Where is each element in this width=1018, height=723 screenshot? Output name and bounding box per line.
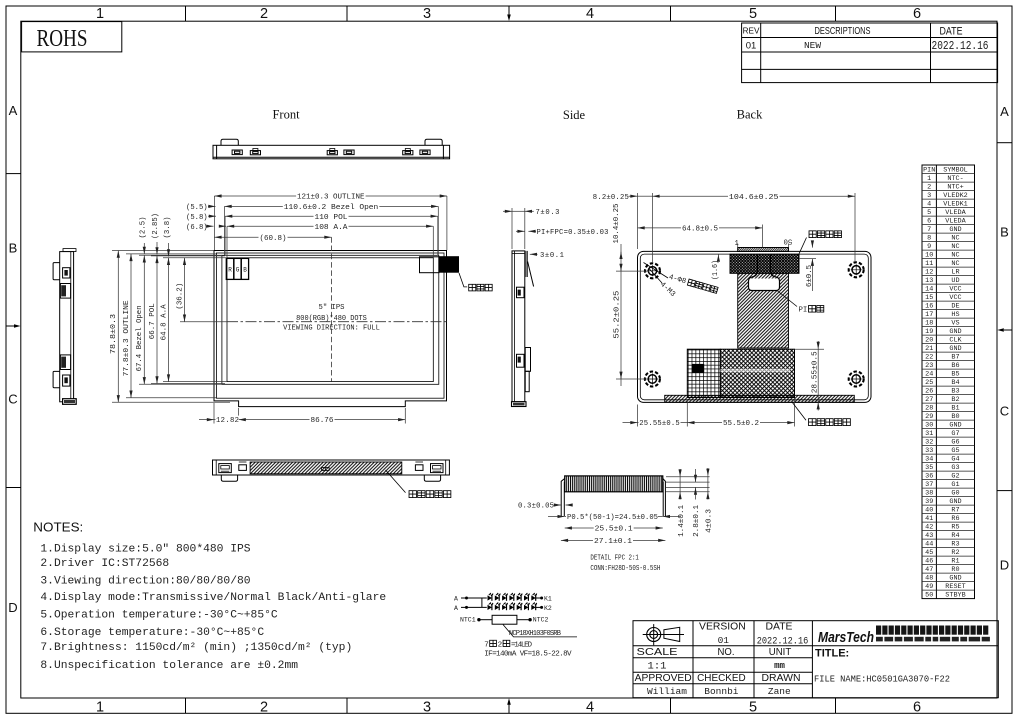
svg-text:LR: LR [951, 269, 959, 277]
svg-text:B6: B6 [951, 362, 959, 370]
svg-text:2: 2 [498, 642, 503, 650]
svg-text:NTC1: NTC1 [460, 617, 476, 624]
svg-text:Front: Front [272, 108, 300, 122]
svg-text:B4: B4 [951, 379, 959, 387]
svg-text:(1.6): (1.6) [712, 260, 720, 280]
svg-text:VLEDA: VLEDA [945, 218, 966, 226]
svg-text:5″ IPS: 5″ IPS [319, 304, 346, 312]
svg-text:R5: R5 [951, 524, 959, 532]
svg-text:MarsTech: MarsTech [818, 630, 874, 646]
svg-text:VLEDK1: VLEDK1 [943, 201, 967, 209]
svg-text:15: 15 [925, 294, 933, 302]
svg-text:110.6±0.2 Bezel Open: 110.6±0.2 Bezel Open [284, 204, 379, 212]
svg-text:33: 33 [925, 447, 933, 455]
svg-text:55.5±0.2: 55.5±0.2 [723, 420, 759, 428]
svg-text:23: 23 [925, 362, 933, 370]
svg-text:B3: B3 [951, 388, 959, 396]
svg-text:47: 47 [925, 566, 933, 574]
svg-text:VCC: VCC [949, 294, 961, 302]
svg-text:NTC2: NTC2 [533, 617, 549, 624]
svg-text:NC: NC [951, 243, 959, 251]
svg-text:GND: GND [949, 328, 961, 336]
svg-text:G2: G2 [951, 473, 959, 481]
svg-text:VLEDK2: VLEDK2 [943, 192, 967, 200]
svg-text:31: 31 [925, 430, 933, 438]
svg-text:IF=140mA VF=18.5-22.8V: IF=140mA VF=18.5-22.8V [484, 651, 572, 659]
svg-text:R3: R3 [951, 541, 959, 549]
svg-text:DATE: DATE [940, 25, 963, 37]
svg-text:14: 14 [925, 286, 933, 294]
svg-text:20: 20 [925, 337, 933, 345]
svg-text:GND: GND [949, 575, 961, 583]
svg-text:42: 42 [925, 524, 933, 532]
svg-text:R7: R7 [951, 507, 959, 515]
svg-text:50: 50 [784, 237, 793, 245]
svg-text:B2: B2 [951, 396, 959, 404]
svg-text:3±0.1: 3±0.1 [540, 252, 564, 260]
svg-text:64.8 A.A: 64.8 A.A [160, 304, 168, 341]
svg-text:A: A [454, 596, 458, 603]
svg-text:B: B [9, 241, 18, 256]
svg-text:8.Unspecification tolerance ar: 8.Unspecification tolerance are ±0.2mm [40, 660, 298, 672]
svg-text:29: 29 [925, 413, 933, 421]
svg-text:D: D [1000, 558, 1009, 573]
svg-text:CONN:FH28D-50S-0.5SH: CONN:FH28D-50S-0.5SH [590, 565, 660, 573]
svg-text:48: 48 [925, 575, 933, 583]
svg-text:26: 26 [925, 388, 933, 396]
svg-text:DETAIL FPC 2:1: DETAIL FPC 2:1 [590, 555, 639, 563]
svg-text:2.8±0.1: 2.8±0.1 [693, 505, 701, 537]
svg-text:22: 22 [925, 354, 933, 362]
svg-text:19: 19 [925, 328, 933, 336]
svg-text:30: 30 [925, 422, 933, 430]
svg-text:24: 24 [925, 371, 933, 379]
svg-text:7: 7 [927, 226, 931, 234]
svg-text:77.8±0.3 OUTLINE: 77.8±0.3 OUTLINE [123, 300, 131, 376]
svg-text:110 POL: 110 POL [315, 214, 348, 222]
svg-text:25: 25 [925, 379, 933, 387]
svg-text:VIEWING DIRECTION: FULL: VIEWING DIRECTION: FULL [283, 324, 380, 332]
svg-text:55.2±0.25: 55.2±0.25 [613, 291, 621, 339]
svg-text:38: 38 [925, 490, 933, 498]
svg-text:G1: G1 [951, 481, 959, 489]
svg-text:7: 7 [484, 642, 489, 650]
svg-text:17: 17 [925, 311, 933, 319]
svg-text:01: 01 [746, 41, 757, 52]
svg-text:UD: UD [951, 277, 959, 285]
svg-text:6±0.5: 6±0.5 [806, 265, 814, 287]
svg-text:2022.12.16: 2022.12.16 [932, 40, 989, 53]
svg-text:GND: GND [949, 226, 961, 234]
svg-text:67.4 Bezel Open: 67.4 Bezel Open [136, 305, 144, 371]
svg-text:mm: mm [774, 661, 785, 671]
svg-text:41: 41 [925, 515, 933, 523]
svg-text:121±0.3 OUTLINE: 121±0.3 OUTLINE [297, 194, 365, 202]
svg-text:PI+FPC=0.35±0.03: PI+FPC=0.35±0.03 [537, 229, 609, 237]
svg-text:NC: NC [951, 235, 959, 243]
svg-text:(2.5): (2.5) [140, 217, 148, 239]
svg-text:78.8±0.3: 78.8±0.3 [110, 314, 118, 354]
svg-text:DATE: DATE [766, 622, 793, 633]
svg-text:(3.8): (3.8) [164, 217, 172, 239]
svg-text:SCALE: SCALE [637, 647, 678, 658]
svg-text:C: C [8, 392, 17, 407]
svg-text:DRAWN: DRAWN [762, 673, 801, 684]
svg-text:2: 2 [260, 6, 268, 22]
svg-text:B1: B1 [951, 405, 959, 413]
svg-text:1: 1 [96, 6, 104, 22]
svg-text:NEW: NEW [804, 40, 821, 51]
svg-text:STBYB: STBYB [945, 592, 965, 600]
svg-text:VERSION: VERSION [699, 622, 746, 633]
svg-text:DE: DE [951, 303, 959, 311]
svg-text:VCC: VCC [949, 286, 961, 294]
svg-text:(6.8): (6.8) [186, 224, 208, 232]
svg-text:5: 5 [749, 700, 757, 716]
svg-text:28: 28 [925, 405, 933, 413]
svg-text:G7: G7 [951, 430, 959, 438]
svg-text:A: A [9, 103, 18, 118]
svg-text:(60.8): (60.8) [260, 235, 287, 243]
svg-text:3: 3 [423, 700, 431, 716]
svg-text:FILE NAME:HC0501GA3070-F22: FILE NAME:HC0501GA3070-F22 [814, 674, 950, 685]
svg-text:NOTES:: NOTES: [33, 520, 83, 534]
svg-text:12: 12 [925, 269, 933, 277]
svg-text:66.7 POL: 66.7 POL [149, 303, 157, 339]
svg-text:DESCRIPTIONS: DESCRIPTIONS [815, 26, 871, 37]
svg-text:28.55±0.5: 28.55±0.5 [812, 351, 820, 393]
svg-text:10.4±0.25: 10.4±0.25 [613, 204, 621, 244]
svg-text:13: 13 [925, 277, 933, 285]
svg-text:25.55±0.5: 25.55±0.5 [639, 420, 680, 428]
svg-text:R1: R1 [951, 558, 959, 566]
svg-text:37: 37 [925, 481, 933, 489]
svg-text:45: 45 [925, 549, 933, 557]
svg-text:R2: R2 [951, 549, 959, 557]
svg-text:49: 49 [925, 583, 933, 591]
svg-text:NC: NC [951, 260, 959, 268]
svg-text:4: 4 [927, 201, 931, 209]
svg-text:7±0.3: 7±0.3 [536, 209, 560, 217]
svg-text:2.Driver IC:ST72568: 2.Driver IC:ST72568 [40, 558, 169, 570]
svg-text:CHECKED: CHECKED [697, 673, 746, 684]
svg-text:104.6±0.25: 104.6±0.25 [729, 194, 779, 202]
svg-text:34: 34 [925, 456, 933, 464]
svg-text:REV: REV [743, 26, 760, 35]
svg-text:NO.: NO. [718, 647, 735, 658]
svg-text:4±0.3: 4±0.3 [706, 509, 714, 533]
svg-text:VS: VS [951, 320, 959, 328]
svg-text:G0: G0 [951, 490, 959, 498]
svg-text:APPROVED: APPROVED [635, 673, 692, 684]
svg-text:36: 36 [925, 473, 933, 481]
svg-text:10: 10 [925, 252, 933, 260]
svg-text:R6: R6 [951, 515, 959, 523]
svg-text:NTC+: NTC+ [947, 184, 963, 192]
svg-text:6: 6 [913, 700, 921, 716]
svg-text:NTC-: NTC- [947, 175, 963, 183]
svg-text:32: 32 [925, 439, 933, 447]
svg-text:12.82: 12.82 [216, 417, 239, 425]
svg-text:NCP18XH103F0SRB: NCP18XH103F0SRB [509, 630, 561, 638]
svg-text:K1: K1 [544, 596, 552, 603]
svg-text:43: 43 [925, 532, 933, 540]
svg-text:4: 4 [586, 700, 594, 716]
svg-text:16: 16 [925, 303, 933, 311]
svg-text:64.8±0.5: 64.8±0.5 [682, 226, 718, 234]
svg-text:21: 21 [925, 345, 933, 353]
svg-text:R: R [228, 266, 232, 273]
svg-text:G6: G6 [951, 439, 959, 447]
svg-text:Zane: Zane [768, 686, 791, 697]
svg-text:39: 39 [925, 498, 933, 506]
svg-text:(36.2): (36.2) [176, 283, 184, 310]
svg-text:D: D [8, 600, 17, 615]
svg-text:1: 1 [927, 175, 931, 183]
svg-text:VLEDA: VLEDA [945, 209, 966, 217]
svg-text:GND: GND [949, 422, 961, 430]
svg-text:44: 44 [925, 541, 933, 549]
svg-text:R0: R0 [951, 566, 959, 574]
svg-text:35: 35 [925, 464, 933, 472]
svg-text:B7: B7 [951, 354, 959, 362]
svg-text:6: 6 [927, 218, 931, 226]
svg-text:46: 46 [925, 558, 933, 566]
svg-text:5.Operation temperature:-30°C~: 5.Operation temperature:-30°C~+85°C [40, 609, 277, 621]
svg-text:27: 27 [925, 396, 933, 404]
svg-text:3.Viewing direction:80/80/80/8: 3.Viewing direction:80/80/80/80 [40, 575, 250, 587]
svg-text:11: 11 [925, 260, 933, 268]
svg-text:TITLE:: TITLE: [815, 648, 849, 660]
svg-text:Side: Side [563, 108, 586, 122]
svg-text:800(RGB)*480 DOTS: 800(RGB)*480 DOTS [296, 315, 367, 323]
svg-text:0.3±0.05: 0.3±0.05 [518, 503, 554, 511]
svg-text:G: G [236, 266, 240, 273]
svg-text:2022.12.16: 2022.12.16 [757, 635, 809, 647]
svg-text:1.Display size:5.0″ 800*480 IP: 1.Display size:5.0″ 800*480 IPS [40, 544, 250, 556]
svg-text:2: 2 [260, 700, 268, 716]
svg-text:PI: PI [799, 307, 808, 315]
svg-text:86.76: 86.76 [311, 417, 334, 425]
svg-text:B0: B0 [951, 413, 959, 421]
svg-text:8: 8 [927, 235, 931, 243]
svg-text:6.Storage temperature:-30°C~+8: 6.Storage temperature:-30°C~+85°C [40, 627, 264, 639]
svg-text:=14LED: =14LED [511, 642, 532, 650]
svg-text:3: 3 [423, 6, 431, 22]
svg-text:P0.5*(50-1)=24.5±0.05: P0.5*(50-1)=24.5±0.05 [567, 514, 658, 522]
svg-text:25.5±0.1: 25.5±0.1 [595, 526, 633, 534]
svg-text:G4: G4 [951, 456, 959, 464]
svg-text:C: C [1000, 403, 1009, 418]
svg-text:(5.5): (5.5) [186, 204, 208, 212]
svg-text:NC: NC [951, 252, 959, 260]
svg-text:B: B [243, 266, 247, 273]
svg-text:GND: GND [949, 345, 961, 353]
svg-text:Bonnbi: Bonnbi [704, 686, 739, 697]
svg-text:GND: GND [949, 498, 961, 506]
svg-text:B: B [1000, 225, 1009, 240]
svg-text:1: 1 [96, 700, 104, 716]
svg-text:18: 18 [925, 320, 933, 328]
svg-text:A: A [1000, 104, 1009, 119]
svg-text:27.1±0.1: 27.1±0.1 [594, 538, 632, 546]
svg-text:4.Display mode:Transmissive/No: 4.Display mode:Transmissive/Normal Black… [40, 592, 386, 604]
svg-text:3: 3 [927, 192, 931, 200]
svg-text:7.Brightness: 1150cd/m² (min): 7.Brightness: 1150cd/m² (min) ;1350cd/m²… [40, 642, 352, 654]
svg-text:K2: K2 [544, 605, 552, 612]
svg-text:R4: R4 [951, 532, 959, 540]
svg-text:(5.8): (5.8) [186, 214, 208, 222]
svg-text:G5: G5 [951, 447, 959, 455]
svg-text:1:1: 1:1 [648, 661, 667, 673]
svg-text:40: 40 [925, 507, 933, 515]
svg-text:4: 4 [586, 6, 594, 22]
svg-text:(2.85): (2.85) [152, 213, 160, 239]
svg-text:50: 50 [925, 592, 933, 600]
svg-text:6: 6 [913, 6, 921, 22]
svg-text:1.4±0.1: 1.4±0.1 [678, 505, 686, 537]
svg-text:William: William [647, 686, 687, 697]
svg-text:8.2±0.25: 8.2±0.25 [593, 194, 629, 202]
svg-text:1: 1 [735, 240, 739, 248]
svg-text:UNIT: UNIT [769, 647, 792, 658]
svg-text:CLK: CLK [949, 337, 962, 345]
svg-text:B5: B5 [951, 371, 959, 379]
svg-text:108 A.A: 108 A.A [315, 224, 349, 232]
svg-text:RESET: RESET [945, 583, 965, 591]
svg-text:SYMBOL: SYMBOL [943, 167, 967, 175]
svg-text:ROHS: ROHS [37, 25, 88, 52]
svg-text:Back: Back [737, 108, 763, 122]
svg-text:5: 5 [927, 209, 931, 217]
svg-text:G3: G3 [951, 464, 959, 472]
svg-text:2: 2 [927, 184, 931, 192]
svg-text:A: A [454, 605, 458, 612]
svg-text:5: 5 [749, 6, 757, 22]
svg-text:PIN: PIN [923, 167, 935, 175]
svg-text:9: 9 [927, 243, 931, 251]
svg-text:01: 01 [718, 635, 730, 646]
svg-text:HS: HS [951, 311, 959, 319]
